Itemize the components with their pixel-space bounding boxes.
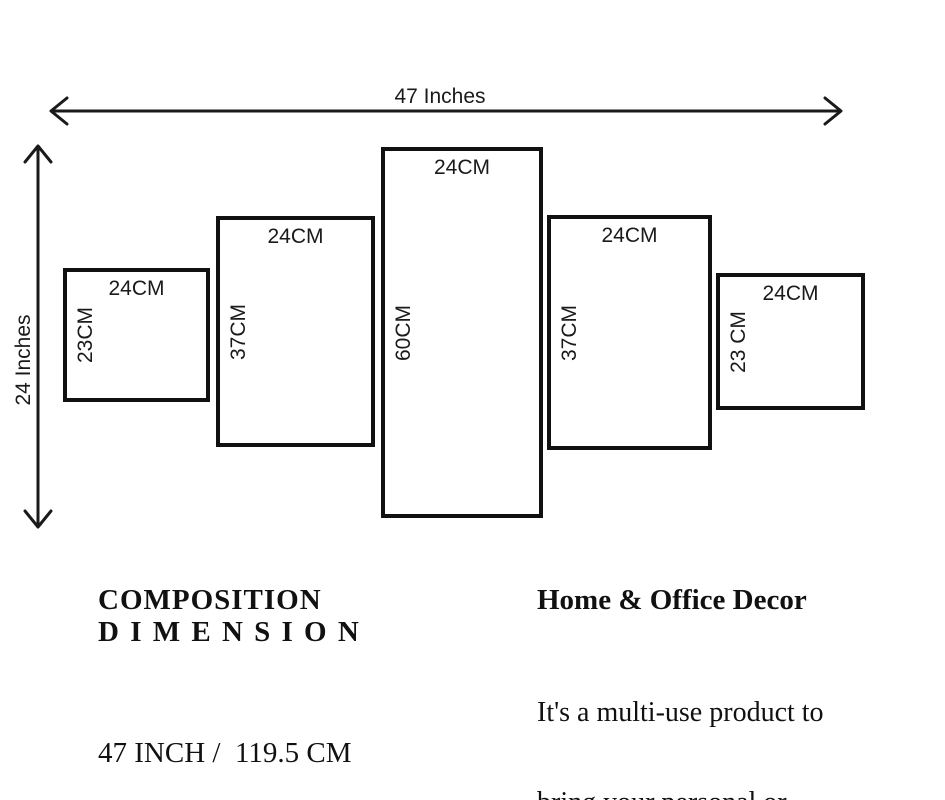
composition-title-line2: D I M E N S I O N <box>98 616 361 648</box>
panel-3-height-label: 60CM <box>392 304 416 360</box>
panel-2-height-label: 37CM <box>227 303 251 359</box>
dimension-diagram-page: 47 Inches 24 Inches 24CM 23CM 24CM 37CM … <box>0 0 945 800</box>
panel-1: 24CM 23CM <box>63 268 210 402</box>
decor-body-line1: It's a multi-use product to <box>537 698 824 728</box>
panel-2-width-label: 24CM <box>220 225 371 249</box>
width-arrow-label: 47 Inches <box>370 85 510 109</box>
composition-sizes: 47 INCH / 119.5 CM 24 INCH / 60 CM <box>98 673 361 800</box>
panel-2: 24CM 37CM <box>216 216 375 447</box>
height-arrow-label: 24 Inches <box>12 314 36 405</box>
panel-5-width-label: 24CM <box>720 282 861 306</box>
panel-3-width-label: 24CM <box>385 156 539 180</box>
panel-1-width-label: 24CM <box>67 277 206 301</box>
decor-body: It's a multi-use product to bring your p… <box>537 638 824 800</box>
panel-3: 24CM 60CM <box>381 147 543 518</box>
panel-5-height-label: 23 CM <box>727 311 751 373</box>
panel-4-height-label: 37CM <box>558 304 582 360</box>
panel-1-height-label: 23CM <box>74 307 98 363</box>
panel-4-width-label: 24CM <box>551 224 708 248</box>
panel-4: 24CM 37CM <box>547 215 712 450</box>
decor-body-line2: bring your personal or <box>537 788 824 800</box>
composition-dimension-block: COMPOSITION D I M E N S I O N 47 INCH / … <box>98 584 361 800</box>
decor-title: Home & Office Decor <box>537 584 824 616</box>
panel-5: 24CM 23 CM <box>716 273 865 410</box>
decor-block: Home & Office Decor It's a multi-use pro… <box>537 584 824 800</box>
composition-title-line1: COMPOSITION <box>98 584 361 616</box>
composition-size-line1: 47 INCH / 119.5 CM <box>98 737 361 769</box>
